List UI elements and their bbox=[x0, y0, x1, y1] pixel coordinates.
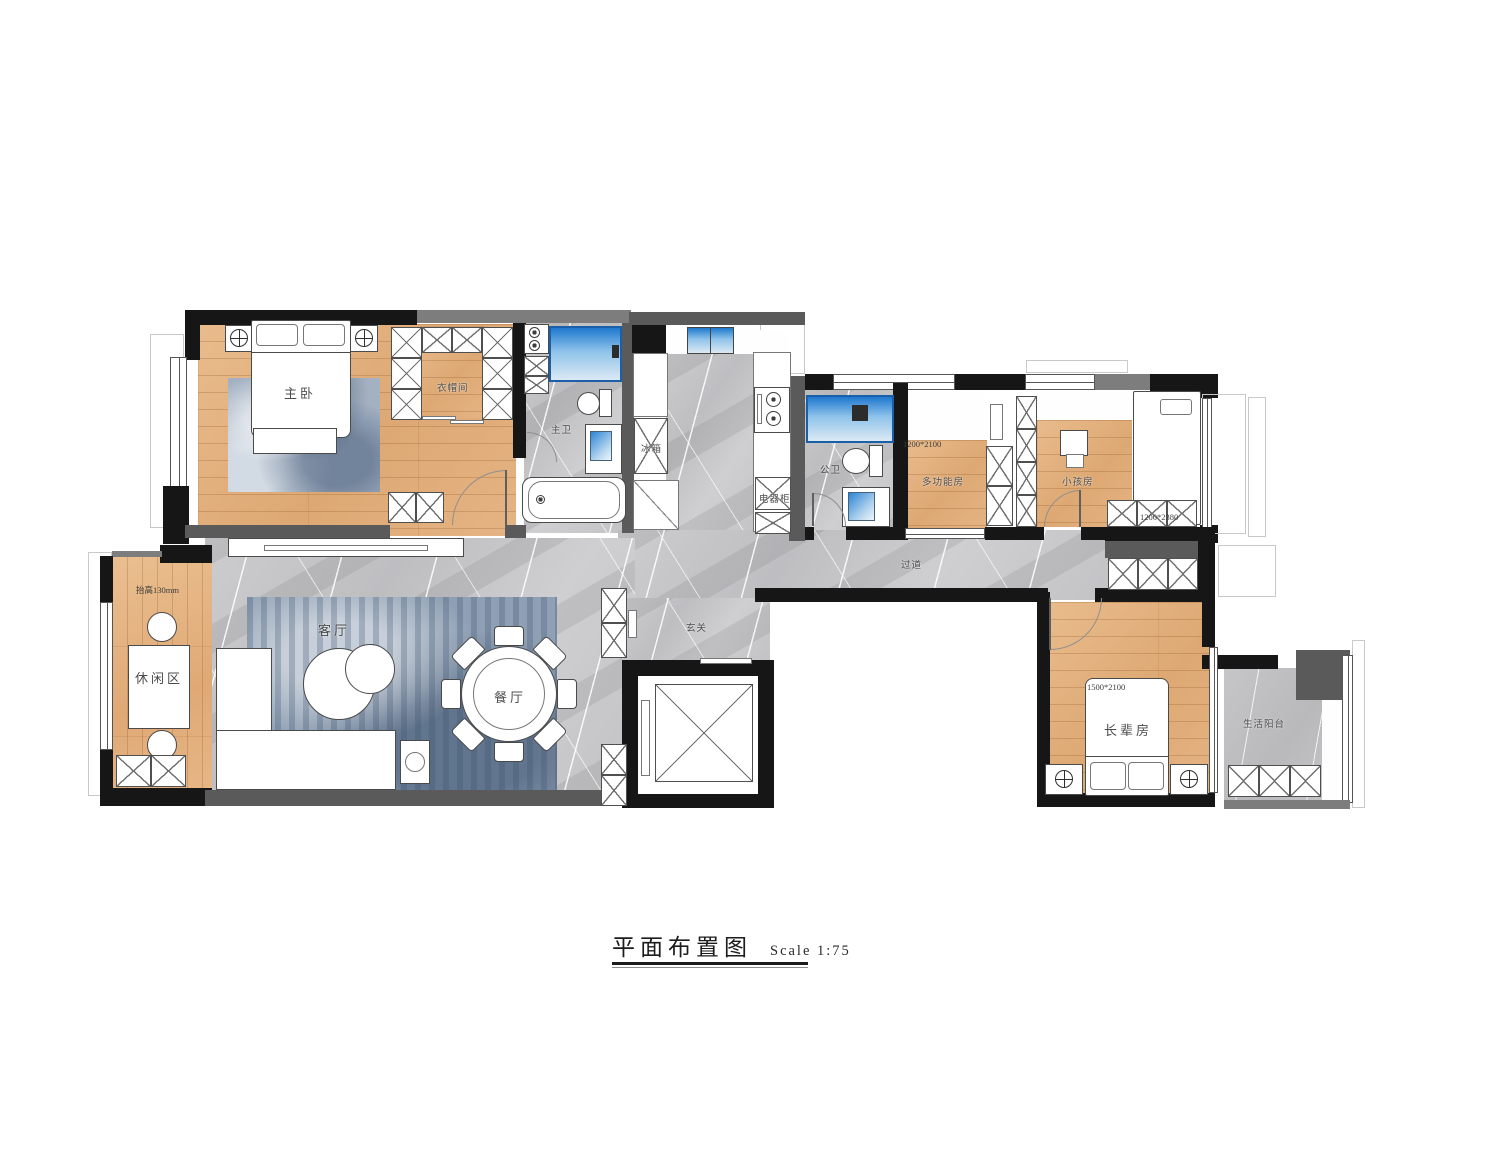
wall bbox=[417, 310, 631, 323]
wardrobe-cabinet bbox=[391, 327, 422, 358]
leisure-cabinet bbox=[151, 755, 186, 787]
exterior-outline bbox=[1218, 545, 1276, 597]
shoe-cabinet bbox=[601, 588, 627, 623]
wall bbox=[985, 527, 1044, 540]
wall bbox=[1095, 588, 1215, 602]
blanket-line bbox=[1086, 756, 1168, 757]
stool bbox=[147, 612, 177, 642]
shoe-cabinet bbox=[601, 623, 627, 658]
elevator-wall bbox=[758, 660, 774, 808]
kitchen-window-mullion bbox=[710, 327, 711, 354]
divider-cabinet bbox=[1016, 396, 1037, 429]
label-multi-room: 多功能房 bbox=[922, 474, 964, 488]
wall bbox=[505, 525, 526, 538]
dining-chair bbox=[441, 679, 461, 709]
door-leaf bbox=[505, 470, 507, 525]
basin-symbol bbox=[529, 340, 540, 351]
shower-head-icon bbox=[852, 405, 868, 421]
title-block: 平面布置图 Scale 1:75 bbox=[612, 928, 851, 962]
balcony-cabinet bbox=[1228, 765, 1259, 797]
elevator-shaft bbox=[655, 684, 753, 782]
wall bbox=[185, 310, 200, 360]
wall bbox=[112, 551, 162, 557]
floor-plan-page: 主卧 衣帽间 主卫 冰箱 电器柜 公卫 多功能房 1200*2100 小孩房 1… bbox=[0, 0, 1500, 1151]
toilet-tank bbox=[599, 389, 612, 417]
dim-kids-room: 1200*2380 bbox=[1140, 512, 1178, 522]
dim-multi-room: 1200*2100 bbox=[903, 439, 941, 449]
wall bbox=[100, 750, 113, 790]
pillow bbox=[256, 324, 298, 346]
dining-chair bbox=[494, 742, 524, 762]
window bbox=[1025, 374, 1095, 390]
wall bbox=[100, 788, 212, 806]
door-leaf bbox=[1079, 490, 1081, 527]
wall bbox=[1095, 374, 1150, 390]
label-closet: 衣帽间 bbox=[437, 380, 469, 394]
ceiling-lamp-symbol bbox=[355, 329, 373, 347]
low-cabinet bbox=[1107, 500, 1137, 527]
wall bbox=[1202, 592, 1215, 647]
exterior-outline bbox=[1352, 640, 1365, 808]
label-balcony: 生活阳台 bbox=[1243, 716, 1285, 730]
label-fridge: 冰箱 bbox=[641, 441, 662, 455]
pillow bbox=[303, 324, 345, 346]
ceiling-lamp-symbol bbox=[230, 329, 248, 347]
kids-chair bbox=[1066, 454, 1084, 468]
appliance-cabinet-unit bbox=[755, 512, 791, 534]
low-cabinet bbox=[388, 492, 416, 523]
door-leaf bbox=[812, 493, 814, 526]
dining-chair bbox=[557, 679, 577, 709]
elevator-door bbox=[700, 658, 752, 664]
wall bbox=[629, 312, 805, 325]
closet-sliding-door bbox=[450, 420, 484, 424]
sink-basin bbox=[848, 492, 875, 521]
wall bbox=[755, 588, 1048, 602]
wardrobe-cabinet bbox=[422, 327, 452, 353]
label-master-bedroom: 主卧 bbox=[284, 383, 316, 402]
window bbox=[170, 357, 187, 488]
low-cabinet bbox=[416, 492, 444, 523]
wall bbox=[805, 527, 814, 540]
wall bbox=[205, 790, 635, 806]
title-underline-thin bbox=[612, 967, 808, 968]
label-elders-room: 长辈房 bbox=[1104, 720, 1152, 739]
label-master-bath: 主卫 bbox=[551, 422, 572, 436]
bath-cabinet bbox=[524, 356, 549, 376]
exterior-outline bbox=[1026, 360, 1128, 373]
wall bbox=[789, 376, 805, 541]
divider-cabinet bbox=[1016, 429, 1037, 462]
door-leaf bbox=[1049, 598, 1051, 650]
kitchen-base-cabinet bbox=[633, 480, 679, 530]
hallway-cabinet bbox=[1138, 558, 1168, 590]
label-foyer: 玄关 bbox=[686, 620, 707, 634]
table-lamp bbox=[405, 752, 425, 772]
window bbox=[1342, 655, 1353, 803]
cabinet bbox=[986, 446, 1013, 486]
toilet bbox=[842, 448, 870, 474]
shower-head-icon bbox=[612, 345, 619, 358]
storage-cabinet bbox=[601, 744, 627, 775]
kitchen-corner-block bbox=[632, 325, 666, 353]
wardrobe-cabinet bbox=[482, 358, 513, 389]
leisure-table bbox=[128, 645, 190, 729]
tv-unit bbox=[264, 545, 428, 551]
hallway-cabinet bbox=[1168, 558, 1198, 590]
wardrobe-cabinet bbox=[391, 358, 422, 389]
sliding-door bbox=[1209, 647, 1218, 793]
plan-title: 平面布置图 bbox=[612, 928, 752, 962]
label-living: 客厅 bbox=[318, 620, 350, 639]
wall bbox=[1105, 527, 1215, 541]
window bbox=[100, 602, 113, 750]
ceiling-lamp-symbol bbox=[1180, 770, 1198, 788]
wall bbox=[1224, 800, 1350, 809]
leisure-cabinet bbox=[116, 755, 151, 787]
console-table bbox=[628, 610, 637, 638]
label-hallway: 过道 bbox=[901, 557, 922, 571]
wardrobe-cabinet bbox=[452, 327, 482, 353]
wall bbox=[955, 374, 1025, 390]
sliding-door bbox=[905, 528, 985, 539]
floor-kitchen-walkway bbox=[666, 354, 754, 540]
stove-controls bbox=[757, 394, 762, 424]
wall bbox=[846, 527, 907, 540]
note-leisure-raise: 抬高130mm bbox=[136, 584, 179, 596]
dining-chair bbox=[494, 626, 524, 646]
label-guest-bath: 公卫 bbox=[820, 462, 841, 476]
basin-symbol bbox=[529, 327, 540, 338]
wardrobe-cabinet bbox=[482, 389, 513, 420]
wall bbox=[185, 525, 390, 538]
stove-burner bbox=[766, 392, 781, 407]
label-leisure: 休闲区 bbox=[135, 668, 183, 687]
wall bbox=[100, 556, 113, 602]
label-dining: 餐厅 bbox=[494, 687, 526, 706]
wardrobe-cabinet bbox=[482, 327, 513, 358]
scale-label: Scale 1:75 bbox=[770, 943, 851, 960]
kitchen-counter bbox=[633, 353, 668, 417]
floor-multi-room-top bbox=[905, 390, 985, 442]
bed-end-bench bbox=[253, 428, 337, 454]
ceiling-lamp-symbol bbox=[1055, 770, 1073, 788]
wardrobe-cabinet bbox=[391, 389, 422, 420]
desk bbox=[990, 404, 1003, 440]
pillow bbox=[1128, 762, 1164, 790]
toilet-tank bbox=[869, 445, 883, 477]
divider-cabinet bbox=[1016, 462, 1037, 495]
elevator-rail bbox=[641, 700, 650, 776]
wall bbox=[1081, 527, 1107, 540]
window bbox=[1202, 398, 1212, 528]
divider-cabinet bbox=[1016, 495, 1037, 527]
sink-basin bbox=[590, 431, 612, 461]
cabinet bbox=[986, 486, 1013, 526]
bath-cabinet bbox=[524, 376, 549, 394]
hallway-cabinet bbox=[1108, 558, 1138, 590]
shower-area bbox=[806, 395, 894, 443]
storage-cabinet bbox=[601, 775, 627, 806]
wall bbox=[893, 383, 908, 540]
balcony-cabinet bbox=[1290, 765, 1321, 797]
kids-desk bbox=[1060, 430, 1088, 456]
sofa-junction bbox=[218, 732, 270, 788]
exterior-outline bbox=[1248, 397, 1266, 537]
blanket-line bbox=[252, 352, 350, 353]
label-appliance-cabinet: 电器柜 bbox=[759, 491, 791, 505]
dim-elders-bed: 1500*2100 bbox=[1087, 682, 1125, 692]
elevator-wall bbox=[622, 794, 774, 808]
label-kids-room: 小孩房 bbox=[1062, 474, 1094, 488]
title-underline bbox=[612, 962, 808, 965]
wall bbox=[160, 545, 212, 563]
stove-burner bbox=[766, 411, 781, 426]
bathtub-drain bbox=[536, 495, 545, 504]
pillow bbox=[1090, 762, 1126, 790]
pillow bbox=[1160, 399, 1192, 415]
toilet bbox=[577, 392, 600, 415]
balcony-cabinet bbox=[1259, 765, 1290, 797]
wall bbox=[805, 374, 833, 390]
coffee-table-small bbox=[345, 644, 395, 694]
